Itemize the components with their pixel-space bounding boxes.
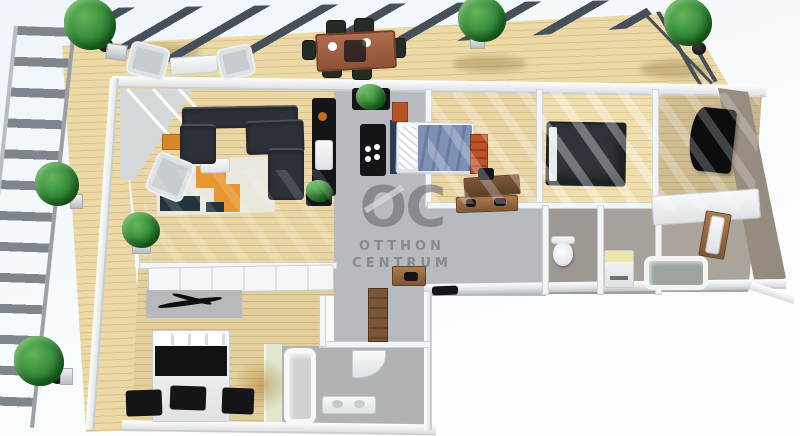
- bathtub-ensuite: [284, 348, 316, 424]
- entry-mat: [432, 286, 458, 296]
- bathtub: [644, 256, 708, 290]
- washing-machine-door: [610, 276, 628, 280]
- double-bed-dark: [545, 121, 626, 186]
- cooktop-burner: [365, 146, 371, 152]
- cooktop-burner: [374, 144, 380, 150]
- table-runner: [344, 40, 366, 62]
- watermark-line2: CENTRUM: [338, 257, 466, 270]
- vanity-sink: [354, 400, 365, 408]
- potted-plant: [458, 0, 506, 42]
- sideboard-item: [466, 199, 476, 207]
- dinner-plate: [328, 42, 337, 51]
- tv-screen: [687, 106, 737, 174]
- potted-plant: [14, 336, 64, 386]
- sectional-sofa-left: [180, 124, 216, 164]
- outer-wall-left-wing-right: [424, 292, 432, 430]
- outdoor-coffee-table: [169, 54, 218, 75]
- potted-plant: [664, 0, 712, 46]
- rug-navy-patch: [206, 202, 224, 212]
- dining-chair: [302, 40, 316, 60]
- nightstand-orange: [392, 102, 408, 122]
- bed-blanket-black: [155, 346, 227, 376]
- potted-plant: [122, 212, 160, 248]
- watermark: OC OTTHON CENTRUM: [338, 180, 466, 270]
- bed-pillow-row: [157, 334, 225, 345]
- planter-box: [105, 43, 128, 62]
- kitchen-plant: [356, 84, 386, 110]
- double-vanity: [322, 396, 376, 414]
- wall-wc-left: [543, 206, 548, 294]
- bed-pillows: [399, 127, 417, 169]
- kitchen-island-cooktop: [360, 124, 386, 176]
- potted-plant: [35, 162, 79, 206]
- floorplan-3d-render: OC OTTHON CENTRUM: [0, 0, 800, 436]
- sectional-sofa-chaise: [268, 148, 304, 200]
- wall-wc-right: [598, 206, 603, 294]
- rug-dark-right: [222, 387, 255, 414]
- toilet: [553, 242, 573, 266]
- tall-wardrobe: [368, 288, 388, 342]
- plant-shadow: [452, 56, 526, 72]
- potted-plant: [64, 0, 116, 50]
- cooktop-burner: [374, 154, 380, 160]
- wall-bathroom2-left-upper: [320, 296, 325, 346]
- bed-pillows: [549, 127, 557, 181]
- wall-bathroom2-top: [320, 342, 430, 347]
- watermark-line1: OTTHON: [338, 240, 466, 253]
- kitchen-sink: [315, 140, 333, 170]
- bed-duvet-blue: [418, 125, 472, 171]
- kitchen-floor-plant: [306, 180, 332, 202]
- washing-machine-top: [605, 251, 633, 262]
- desk-chair: [478, 168, 494, 180]
- counter-bowl: [318, 112, 327, 121]
- wall-bedroom1-right: [537, 90, 542, 206]
- bed-bench: [170, 385, 207, 410]
- rug-dark-left: [126, 389, 163, 416]
- laptop: [404, 272, 418, 281]
- sideboard-item: [494, 198, 506, 206]
- cooktop-burner: [365, 156, 371, 162]
- vanity-sink: [332, 400, 343, 408]
- wall-bedroom2-right: [653, 90, 658, 210]
